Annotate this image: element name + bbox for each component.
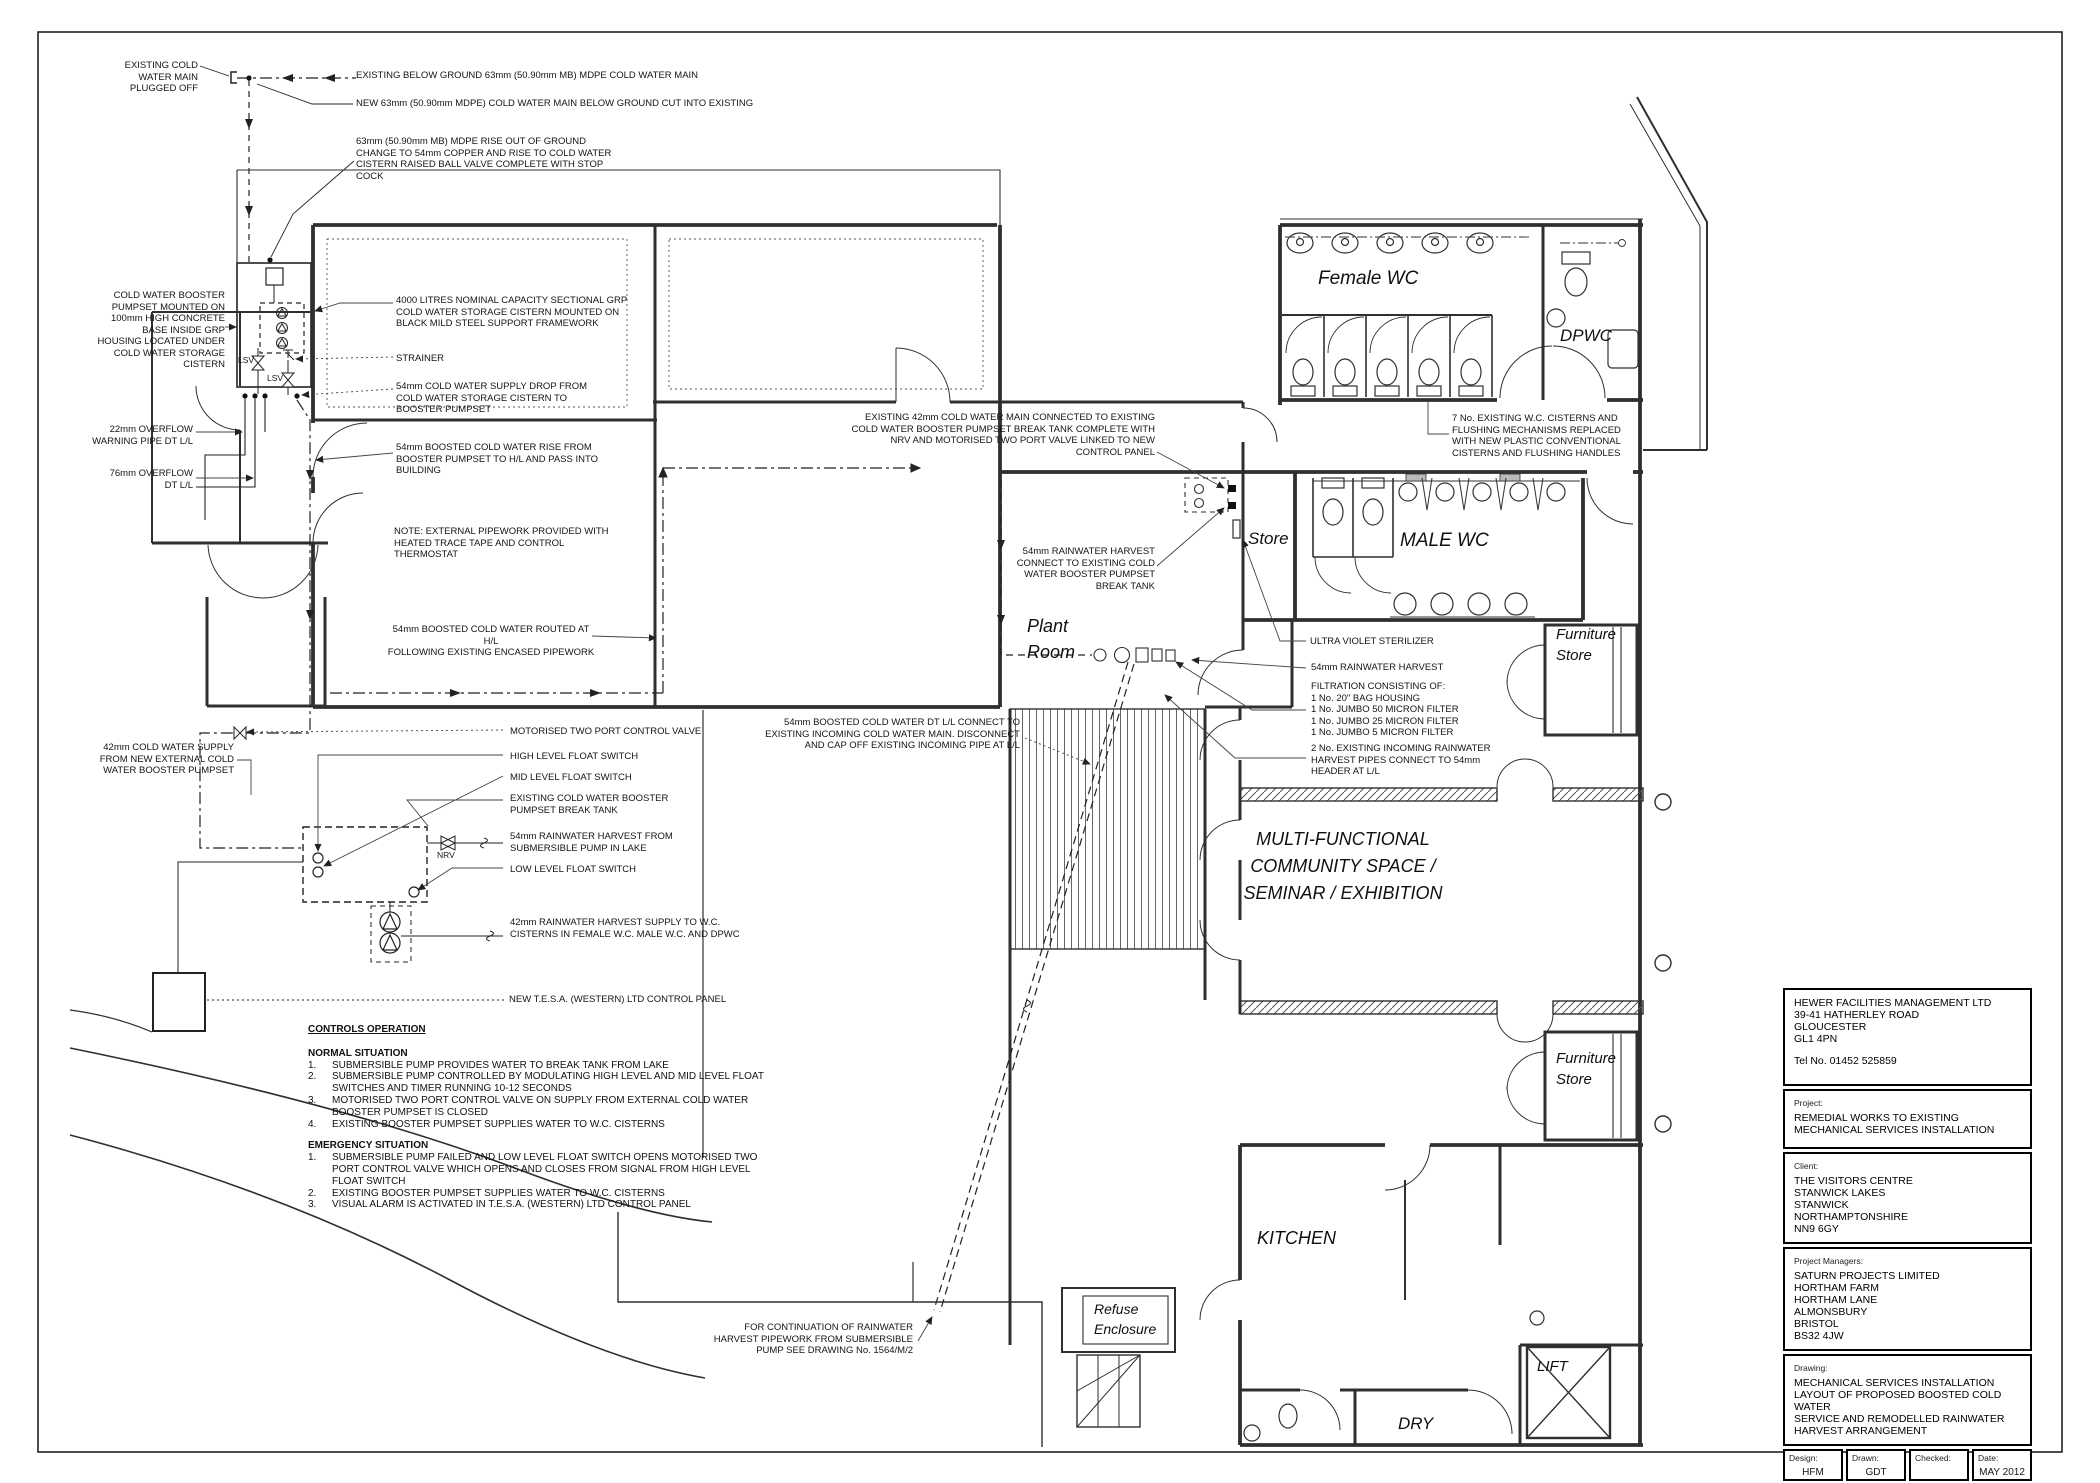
annotation-cistern-4000: 4000 LITRES NOMINAL CAPACITY SECTIONAL G… <box>396 295 627 330</box>
annotation-note-external: NOTE: EXTERNAL PIPEWORK PROVIDED WITH HE… <box>394 526 608 561</box>
filtration-equipment <box>1094 648 1175 663</box>
item-text: EXISTING BOOSTER PUMPSET SUPPLIES WATER … <box>332 1119 778 1131</box>
title-block-signoff-row: Design: HFM Drawn: GDT Checked: Date: MA… <box>1783 1449 2032 1481</box>
item-text: VISUAL ALARM IS ACTIVATED IN T.E.S.A. (W… <box>332 1199 778 1211</box>
ramp-stairs <box>1010 709 1205 1345</box>
design-cell: Design: HFM <box>1783 1449 1843 1481</box>
annotation-cisterns-replaced: 7 No. EXISTING W.C. CISTERNS AND FLUSHIN… <box>1452 413 1621 459</box>
annotation-supply-drop: 54mm COLD WATER SUPPLY DROP FROM COLD WA… <box>396 381 587 416</box>
drawn-label: Drawn: <box>1852 1453 1900 1463</box>
annotation-existing-break-tank: EXISTING COLD WATER BOOSTER PUMPSET BREA… <box>510 793 668 816</box>
annotation-motorised-valve: MOTORISED TWO PORT CONTROL VALVE <box>510 726 701 738</box>
item-number: 2. <box>308 1188 332 1200</box>
drawing-sheet: EXISTING COLD WATER MAIN PLUGGED OFF EXI… <box>0 0 2100 1483</box>
tesa-control-panel <box>153 973 205 1031</box>
client-label: Client: <box>1794 1161 2021 1171</box>
room-label-plant-room: Plant Room <box>1027 613 1075 665</box>
annotation-existing-below-ground: EXISTING BELOW GROUND 63mm (50.90mm MB) … <box>356 70 698 82</box>
title-block-project-managers: Project Managers: SATURN PROJECTS LIMITE… <box>1783 1247 2032 1351</box>
drawn-cell: Drawn: GDT <box>1846 1449 1906 1481</box>
motorised-valve-icon <box>234 727 246 739</box>
controls-item: 2.SUBMERSIBLE PUMP CONTROLLED BY MODULAT… <box>308 1071 778 1095</box>
room-label-kitchen: KITCHEN <box>1257 1228 1336 1249</box>
annotation-plugged-off: EXISTING COLD WATER MAIN PLUGGED OFF <box>125 60 198 95</box>
uv-sterilizer-unit <box>1233 520 1240 538</box>
column-marker <box>1655 955 1671 971</box>
room-label-female-wc: Female WC <box>1318 268 1418 290</box>
controls-emergency-heading: EMERGENCY SITUATION <box>308 1140 778 1152</box>
item-text: SUBMERSIBLE PUMP CONTROLLED BY MODULATIN… <box>332 1071 778 1095</box>
female-wc-block <box>1280 219 1643 405</box>
nrv-label: NRV <box>437 850 455 860</box>
annotation-rainwater-lake: 54mm RAINWATER HARVEST FROM SUBMERSIBLE … <box>510 831 673 854</box>
annotation-rise-out: 63mm (50.90mm MB) MDPE RISE OUT OF GROUN… <box>356 136 611 182</box>
date-cell: Date: MAY 2012 <box>1972 1449 2032 1481</box>
client-value: THE VISITORS CENTRE STANWICK LAKES STANW… <box>1794 1175 2021 1235</box>
annotation-cw-supply-42: 42mm COLD WATER SUPPLY FROM NEW EXTERNAL… <box>100 742 234 777</box>
controls-item: 4.EXISTING BOOSTER PUMPSET SUPPLIES WATE… <box>308 1119 778 1131</box>
drawing-title-value: MECHANICAL SERVICES INSTALLATION LAYOUT … <box>1794 1377 2021 1437</box>
item-text: SUBMERSIBLE PUMP FAILED AND LOW LEVEL FL… <box>332 1152 778 1187</box>
room-label-multifunctional: MULTI-FUNCTIONAL COMMUNITY SPACE / SEMIN… <box>1243 826 1443 907</box>
title-block-drawing: Drawing: MECHANICAL SERVICES INSTALLATIO… <box>1783 1354 2032 1446</box>
annotation-overflow-76: 76mm OVERFLOW DT L/L <box>110 468 193 491</box>
controls-normal-heading: NORMAL SITUATION <box>308 1048 778 1060</box>
title-block-project: Project: REMEDIAL WORKS TO EXISTING MECH… <box>1783 1089 2032 1149</box>
basin-fixtures <box>1390 593 1535 617</box>
drawing-label: Drawing: <box>1794 1363 2021 1373</box>
annotation-incoming-rainwater: 2 No. EXISTING INCOMING RAINWATER HARVES… <box>1311 743 1490 778</box>
wc-cubicle-doors <box>1286 317 1490 353</box>
annotation-rainwater-54: 54mm RAINWATER HARVEST <box>1311 662 1443 674</box>
annotation-overflow-22: 22mm OVERFLOW WARNING PIPE DT L/L <box>92 424 193 447</box>
annotation-booster-pumpset: COLD WATER BOOSTER PUMPSET MOUNTED ON 10… <box>97 290 225 371</box>
urinal-fixtures <box>1399 478 1565 510</box>
annotation-high-float: HIGH LEVEL FLOAT SWITCH <box>510 751 638 763</box>
item-text: MOTORISED TWO PORT CONTROL VALVE ON SUPP… <box>332 1095 778 1119</box>
column-marker <box>1655 1116 1671 1132</box>
nrv-valve-icon <box>441 836 455 850</box>
low-float-switch-icon <box>409 887 419 897</box>
annotation-rainwater-connect: 54mm RAINWATER HARVEST CONNECT TO EXISTI… <box>1017 546 1155 592</box>
room-label-furniture-store-2: Furniture Store <box>1556 1048 1616 1090</box>
item-number: 4. <box>308 1119 332 1131</box>
controls-item: 3.MOTORISED TWO PORT CONTROL VALVE ON SU… <box>308 1095 778 1119</box>
controls-operation: CONTROLS OPERATION NORMAL SITUATION 1.SU… <box>308 1024 778 1211</box>
design-value: HFM <box>1789 1467 1837 1478</box>
item-number: 2. <box>308 1071 332 1095</box>
controls-item: 3.VISUAL ALARM IS ACTIVATED IN T.E.S.A. … <box>308 1199 778 1211</box>
room-label-dpwc: DPWC <box>1560 326 1612 346</box>
high-float-switch-icon <box>313 853 323 863</box>
title-block: HEWER FACILITIES MANAGEMENT LTD 39-41 HA… <box>1783 988 2032 1483</box>
design-label: Design: <box>1789 1453 1837 1463</box>
project-managers-label: Project Managers: <box>1794 1256 2021 1266</box>
controls-item: 1.SUBMERSIBLE PUMP FAILED AND LOW LEVEL … <box>308 1152 778 1187</box>
room-label-lift: LIFT <box>1537 1358 1568 1375</box>
column-marker <box>1655 794 1671 810</box>
project-label: Project: <box>1794 1098 2021 1108</box>
controls-item: 2.EXISTING BOOSTER PUMPSET SUPPLIES WATE… <box>308 1188 778 1200</box>
item-text: EXISTING BOOSTER PUMPSET SUPPLIES WATER … <box>332 1188 778 1200</box>
company-tel: Tel No. 01452 525859 <box>1794 1055 2021 1067</box>
annotation-uv-sterilizer: ULTRA VIOLET STERILIZER <box>1310 636 1434 648</box>
submersible-pumps-icon <box>371 906 411 962</box>
item-number: 1. <box>308 1060 332 1072</box>
room-label-male-wc: MALE WC <box>1400 530 1489 552</box>
annotation-boosted-rise: 54mm BOOSTED COLD WATER RISE FROM BOOSTE… <box>396 442 598 477</box>
title-block-client: Client: THE VISITORS CENTRE STANWICK LAK… <box>1783 1152 2032 1244</box>
date-value: MAY 2012 <box>1978 1467 2026 1478</box>
date-label: Date: <box>1978 1453 2026 1463</box>
title-block-company: HEWER FACILITIES MANAGEMENT LTD 39-41 HA… <box>1783 988 2032 1086</box>
wc-fixtures <box>1291 359 1483 396</box>
annotation-filtration: FILTRATION CONSISTING OF: 1 No. 20" BAG … <box>1311 681 1459 739</box>
room-label-store: Store <box>1248 529 1289 549</box>
company-address: HEWER FACILITIES MANAGEMENT LTD 39-41 HA… <box>1794 997 2021 1045</box>
annotation-control-panel: NEW T.E.S.A. (WESTERN) LTD CONTROL PANEL <box>509 994 726 1006</box>
room-label-refuse: Refuse Enclosure <box>1094 1299 1156 1339</box>
lsv-label: LSV <box>238 355 254 365</box>
controls-item: 1.SUBMERSIBLE PUMP PROVIDES WATER TO BRE… <box>308 1060 778 1072</box>
annotation-existing-42: EXISTING 42mm COLD WATER MAIN CONNECTED … <box>851 412 1155 458</box>
project-managers-value: SATURN PROJECTS LIMITED HORTHAM FARM HOR… <box>1794 1270 2021 1342</box>
item-number: 1. <box>308 1152 332 1187</box>
mid-float-switch-icon <box>313 867 323 877</box>
entrance-porch <box>207 545 325 706</box>
item-number: 3. <box>308 1095 332 1119</box>
lsv-label: LSV <box>267 373 283 383</box>
annotation-mid-float: MID LEVEL FLOAT SWITCH <box>510 772 632 784</box>
basin-fixtures <box>1287 233 1493 253</box>
checked-label: Checked: <box>1915 1453 1963 1463</box>
annotation-strainer: STRAINER <box>396 353 444 365</box>
annotation-low-float: LOW LEVEL FLOAT SWITCH <box>510 864 636 876</box>
dpwc-fixtures <box>1547 240 1638 369</box>
room-label-furniture-store-1: Furniture Store <box>1556 624 1616 666</box>
kitchen-block <box>1200 1145 1643 1445</box>
room-label-dry: DRY <box>1398 1414 1433 1434</box>
annotation-rainwater-supply-42: 42mm RAINWATER HARVEST SUPPLY TO W.C. CI… <box>510 917 740 940</box>
checked-cell: Checked: <box>1909 1449 1969 1481</box>
annotation-routed-hl: 54mm BOOSTED COLD WATER ROUTED AT H/L FO… <box>385 624 597 659</box>
annotation-new-main: NEW 63mm (50.90mm MDPE) COLD WATER MAIN … <box>356 98 753 110</box>
drawn-value: GDT <box>1852 1467 1900 1478</box>
annotation-boosted-dt-ll: 54mm BOOSTED COLD WATER DT L/L CONNECT T… <box>765 717 1020 752</box>
incoming-main-pipework <box>200 66 356 263</box>
annotation-continuation: FOR CONTINUATION OF RAINWATER HARVEST PI… <box>714 1322 913 1357</box>
plant-control-panel <box>1185 478 1236 512</box>
controls-heading: CONTROLS OPERATION <box>308 1024 778 1036</box>
item-number: 3. <box>308 1199 332 1211</box>
project-value: REMEDIAL WORKS TO EXISTING MECHANICAL SE… <box>1794 1112 2021 1136</box>
item-text: SUBMERSIBLE PUMP PROVIDES WATER TO BREAK… <box>332 1060 778 1072</box>
